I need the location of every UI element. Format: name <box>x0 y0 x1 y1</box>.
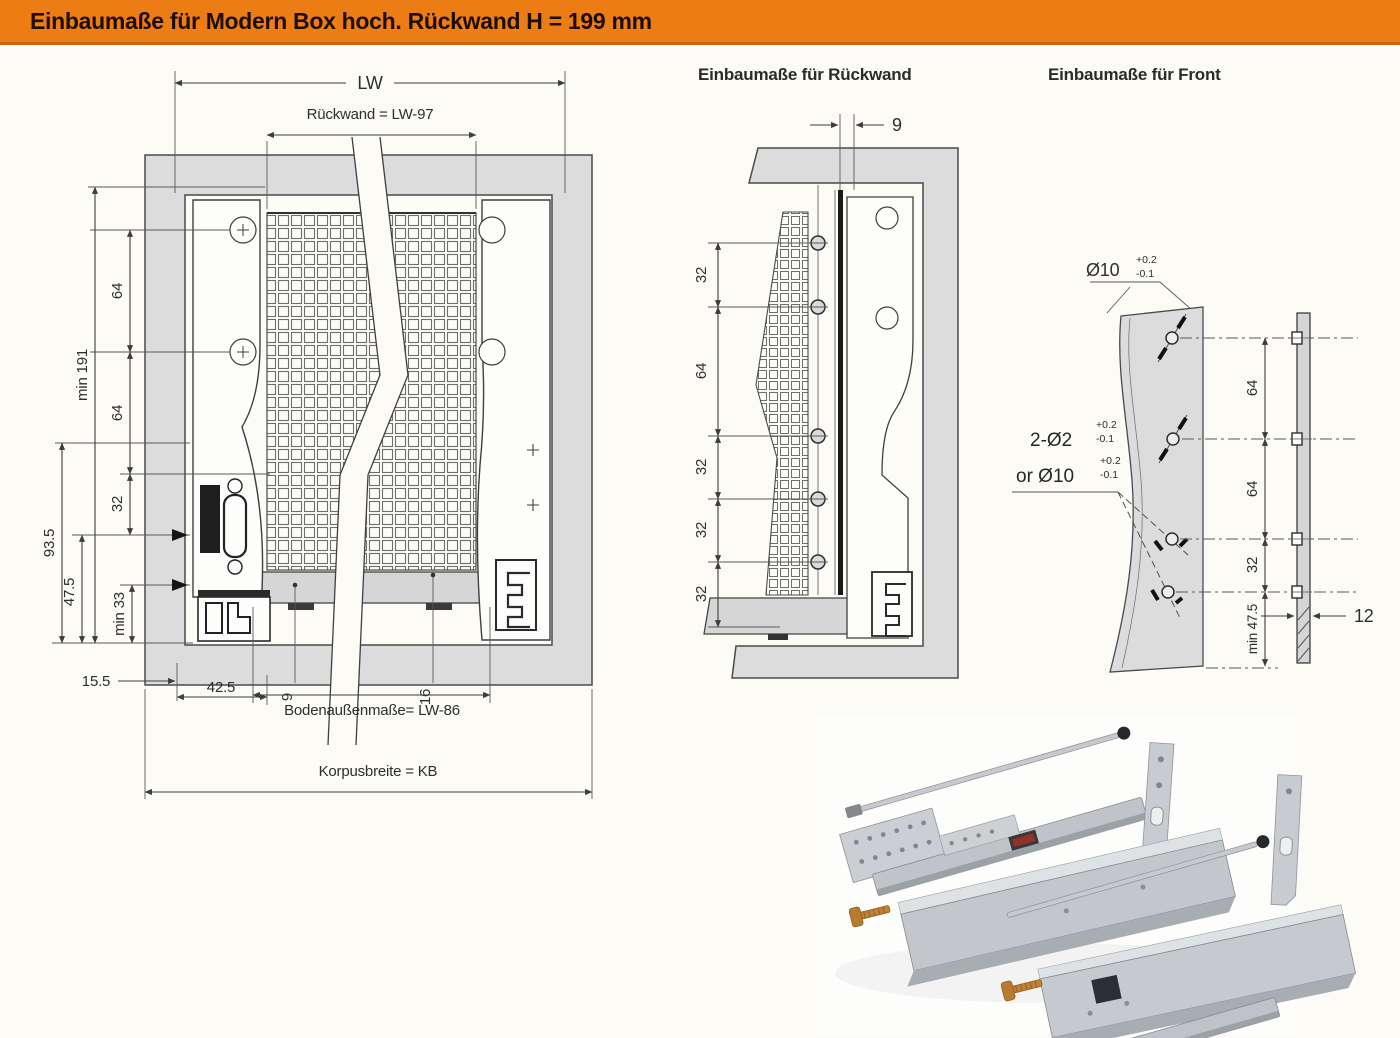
dim-label-dia2: 2-Ø2 <box>1030 430 1072 451</box>
cabinet-front-drawing: LW Rückwand = LW-97 min 191 64 64 32 93.… <box>30 45 670 805</box>
right-hook-bracket <box>496 560 536 630</box>
front-panel-section <box>1110 307 1203 672</box>
dim-label-32-1: 32 <box>693 267 710 283</box>
bottom-panel-section <box>704 598 848 634</box>
dim-label-32-4: 32 <box>693 586 710 602</box>
tolerance-plus-3: +0.2 <box>1100 455 1121 467</box>
dim-label-min33: min 33 <box>111 592 128 636</box>
dim-label-12: 12 <box>1354 606 1374 626</box>
front-panel-drawing: Einbaumaße für Front Ø10 +0.2 -0.1 2-Ø2 … <box>1010 50 1400 690</box>
break-tick <box>1107 287 1130 313</box>
dim-label-64: 64 <box>693 363 710 379</box>
dim-label-64-upper: 64 <box>1244 380 1261 396</box>
dim-label-min191: min 191 <box>74 349 91 401</box>
hook-bracket <box>872 572 912 636</box>
dim-label-32: 32 <box>109 496 126 512</box>
leader-line <box>1090 282 1192 310</box>
dim-label-bodenaussenmasse: Bodenaußenmaße= LW-86 <box>284 702 460 719</box>
page-title: Einbaumaße für Modern Box hoch. Rückwand… <box>0 8 652 35</box>
rear-gap-line <box>838 190 843 595</box>
panel-foot <box>768 634 788 640</box>
panel-foot <box>426 603 452 610</box>
dim-label-lw: LW <box>357 73 382 93</box>
dim-label-64-lower: 64 <box>109 405 126 421</box>
dim-label-9: 9 <box>279 693 296 701</box>
dim-label-42-5: 42.5 <box>207 679 235 696</box>
dim-label-rueckwand: Rückwand = LW-97 <box>307 106 434 123</box>
dim-label-32-2: 32 <box>693 459 710 475</box>
dim-label-or-dia10: or Ø10 <box>1016 466 1074 487</box>
tolerance-minus-2: -0.1 <box>1096 433 1114 445</box>
tolerance-plus: +0.2 <box>1136 254 1157 266</box>
dim-label-64-upper: 64 <box>109 283 126 299</box>
tolerance-plus-2: +0.2 <box>1096 419 1117 431</box>
tolerance-minus-3: -0.1 <box>1100 469 1118 481</box>
product-photo <box>815 715 1295 1035</box>
dim-label-32: 32 <box>1244 557 1261 573</box>
rear-wall-grid-panel <box>756 212 808 595</box>
drawer-bottom-panel <box>253 572 490 603</box>
dim-label-32-3: 32 <box>693 522 710 538</box>
dim-label-dia10: Ø10 <box>1086 260 1120 280</box>
dim-label-min47-5: min 47.5 <box>1245 604 1260 654</box>
panel-foot <box>288 603 314 610</box>
mounting-tab <box>876 207 898 229</box>
front-board-edge <box>1297 313 1310 663</box>
dim-label-9: 9 <box>892 115 902 135</box>
dim-label-korpusbreite: Korpusbreite = KB <box>319 763 438 780</box>
mounting-tab <box>876 307 898 329</box>
dim-label-64-lower: 64 <box>1244 481 1261 497</box>
dim-label-15-5: 15.5 <box>82 673 110 690</box>
dim-label-93-5: 93.5 <box>41 529 58 557</box>
dim-label-47-5: 47.5 <box>61 578 78 606</box>
section-title-rueckwand: Einbaumaße für Rückwand <box>698 65 912 84</box>
mounting-tab <box>479 339 505 365</box>
header-bar: Einbaumaße für Modern Box hoch. Rückwand… <box>0 0 1400 45</box>
tolerance-minus: -0.1 <box>1136 268 1154 280</box>
section-title-front: Einbaumaße für Front <box>1048 65 1221 84</box>
rear-wall-drawing: Einbaumaße für Rückwand 9 32 64 32 32 32 <box>680 50 1010 710</box>
mounting-tab <box>479 217 505 243</box>
